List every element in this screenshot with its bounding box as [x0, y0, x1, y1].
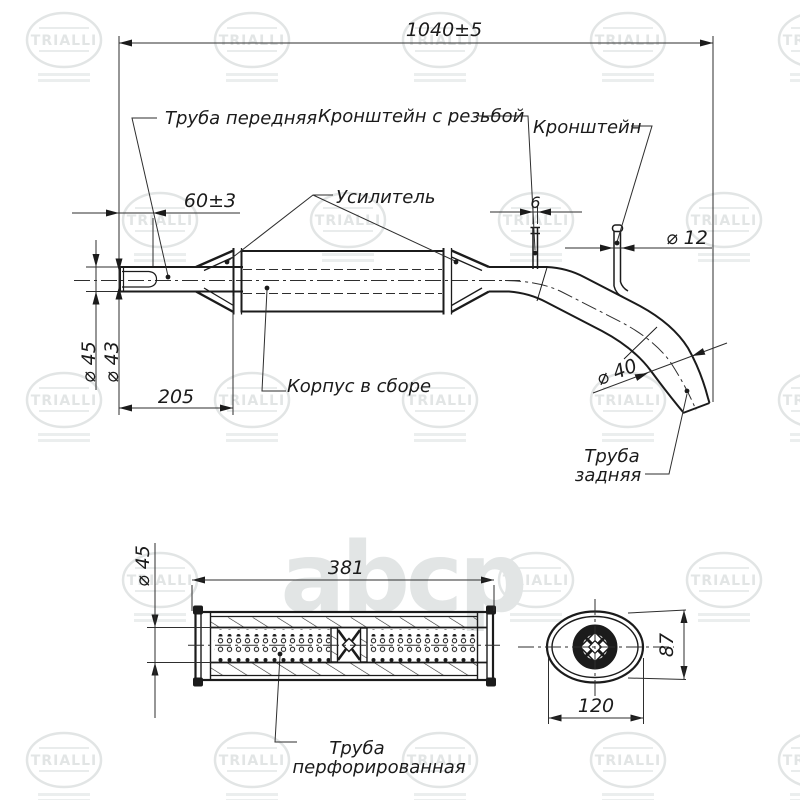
front-pipe [120, 267, 243, 292]
dim-body-length: 381 [328, 557, 364, 579]
hook-bracket [613, 225, 629, 297]
dim-front-pipe-length: 205 [158, 386, 194, 408]
dim-body-height: 87 [656, 633, 678, 657]
dim-overall-length: 1040±5 [406, 19, 482, 41]
left-cone [196, 251, 234, 313]
end-view-dimensions [549, 610, 687, 724]
dim-body-width: 120 [578, 695, 614, 717]
dim-pipe-outer-diameter: ⌀ 45 [78, 341, 100, 383]
section-view [188, 606, 500, 687]
dim-rod-width: 6 [530, 193, 540, 212]
dim-perforated-diameter: ⌀ 45 [132, 545, 154, 587]
dim-rod-diameter: ⌀ 12 [666, 227, 708, 249]
hidden-lines [243, 270, 442, 294]
label-perforated-line2: перфорированная [292, 757, 465, 778]
muffler-assembly-drawing: TRIALLI abcp [0, 0, 800, 800]
label-rear-pipe-line2: задняя [575, 465, 642, 486]
dim-rear-pipe-diameter: ⌀ 40 [593, 355, 640, 390]
right-cone [452, 251, 490, 313]
label-front-pipe: Труба передняя [165, 108, 317, 129]
technical-drawing-sheet: TRIALLI abcp [0, 0, 800, 800]
dim-pipe-inner-diameter: ⌀ 43 [101, 341, 123, 383]
label-bracket-threaded: Кронштейн с резьбой [318, 106, 525, 127]
dim-sleeve-length: 60±3 [184, 190, 236, 212]
label-body-assembly: Корпус в сборе [287, 376, 431, 397]
label-bracket: Кронштейн [533, 117, 642, 138]
label-reinforcement: Усилитель [336, 187, 435, 208]
label-rear-pipe-line1: Труба [584, 446, 639, 467]
label-perforated-line1: Труба [329, 738, 384, 759]
